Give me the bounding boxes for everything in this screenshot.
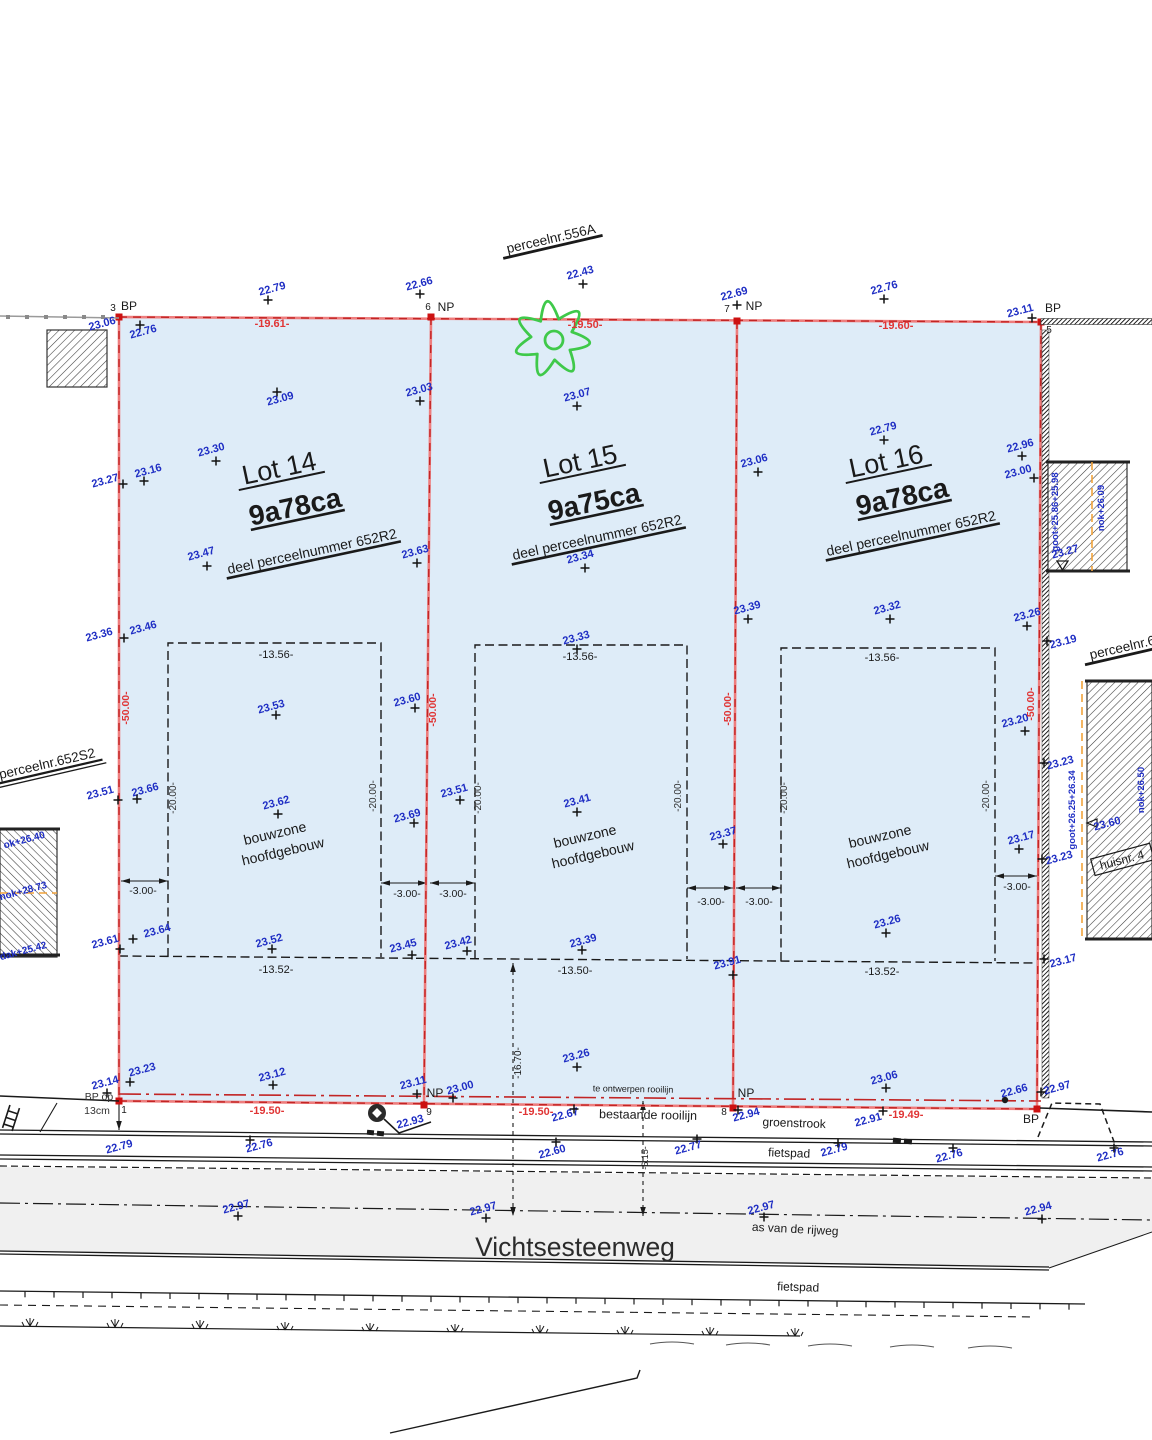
- svg-text:fietspad: fietspad: [777, 1279, 819, 1294]
- svg-text:-3.00-: -3.00-: [393, 888, 421, 900]
- svg-text:-13.50-: -13.50-: [558, 965, 593, 977]
- svg-text:9: 9: [426, 1107, 432, 1118]
- svg-text:-13.56-: -13.56-: [865, 652, 900, 664]
- svg-text:-19.61-: -19.61-: [255, 318, 290, 330]
- svg-text:BP: BP: [1023, 1112, 1039, 1126]
- svg-text:1: 1: [121, 1105, 127, 1116]
- svg-text:-20.00-: -20.00-: [368, 780, 379, 812]
- svg-text:-19.50-: -19.50-: [568, 319, 603, 331]
- svg-text:groenstrook: groenstrook: [762, 1115, 827, 1131]
- svg-text:8: 8: [721, 1107, 727, 1118]
- svg-text:NP: NP: [746, 299, 763, 313]
- svg-text:BP: BP: [121, 299, 137, 313]
- svg-text:-3.00-: -3.00-: [129, 885, 157, 897]
- svg-text:-20.00-: -20.00-: [473, 782, 484, 814]
- svg-text:NP: NP: [738, 1086, 755, 1100]
- svg-text:nok+26.50: nok+26.50: [1136, 767, 1147, 813]
- svg-text:NP: NP: [438, 300, 455, 314]
- svg-text:-19.50-: -19.50-: [519, 1106, 554, 1118]
- svg-text:3: 3: [110, 303, 116, 314]
- svg-text:NP: NP: [427, 1086, 444, 1100]
- svg-text:7: 7: [724, 304, 730, 315]
- svg-text:BP: BP: [1045, 301, 1061, 315]
- svg-text:-20.00-: -20.00-: [779, 782, 790, 814]
- svg-text:-50.00-: -50.00-: [120, 691, 132, 725]
- svg-text:-50.00-: -50.00-: [722, 692, 734, 726]
- svg-text:fietspad: fietspad: [768, 1145, 810, 1160]
- svg-text:-13.52-: -13.52-: [259, 964, 294, 976]
- svg-text:-13.52-: -13.52-: [865, 966, 900, 978]
- svg-text:-20.00-: -20.00-: [168, 782, 179, 814]
- svg-text:-50.00-: -50.00-: [1025, 687, 1037, 721]
- svg-text:-19.49-: -19.49-: [889, 1109, 924, 1121]
- svg-text:-13.56-: -13.56-: [259, 649, 294, 661]
- svg-text:Vichtsesteenweg: Vichtsesteenweg: [475, 1232, 675, 1262]
- svg-text:te ontwerpen rooilijn: te ontwerpen rooilijn: [593, 1083, 674, 1094]
- svg-text:-20.00-: -20.00-: [673, 780, 684, 812]
- svg-text:-19.60-: -19.60-: [879, 320, 914, 332]
- svg-text:-50.00-: -50.00-: [427, 693, 439, 727]
- svg-text:nok+26.09: nok+26.09: [1096, 485, 1107, 531]
- svg-text:-3.00-: -3.00-: [697, 896, 725, 908]
- svg-text:13cm: 13cm: [84, 1105, 110, 1117]
- svg-text:BP op: BP op: [85, 1091, 114, 1103]
- svg-text:-20.00-: -20.00-: [981, 780, 992, 812]
- svg-text:bestaande rooilijn: bestaande rooilijn: [599, 1107, 697, 1123]
- svg-text:-3.00-: -3.00-: [745, 896, 773, 908]
- svg-text:-19.50-: -19.50-: [250, 1105, 285, 1117]
- svg-text:-3.00-: -3.00-: [439, 888, 467, 900]
- svg-text:5: 5: [1046, 325, 1052, 336]
- svg-text:-16.70-: -16.70-: [513, 1047, 524, 1079]
- svg-text:goot+25.86+25.98: goot+25.86+25.98: [1050, 472, 1061, 551]
- svg-text:goot+26.25+26.34: goot+26.25+26.34: [1067, 770, 1078, 850]
- svg-text:-3.00-: -3.00-: [1003, 881, 1031, 893]
- svg-text:-13.56-: -13.56-: [563, 651, 598, 663]
- svg-text:-6.15-: -6.15-: [640, 1146, 650, 1170]
- svg-text:6: 6: [425, 302, 431, 313]
